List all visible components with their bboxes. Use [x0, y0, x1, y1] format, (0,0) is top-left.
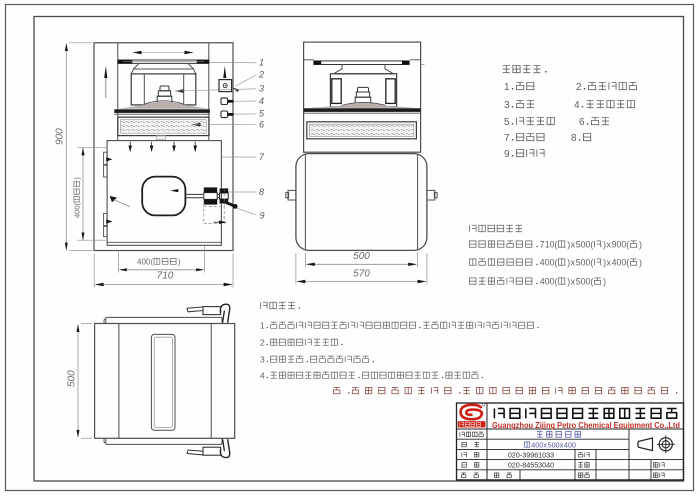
- svg-text:2: 2: [576, 82, 582, 93]
- svg-text:570: 570: [353, 268, 370, 279]
- svg-text:3: 3: [260, 355, 265, 365]
- svg-text:400: 400: [564, 440, 576, 449]
- svg-text:1: 1: [504, 82, 510, 93]
- svg-text:3: 3: [259, 84, 264, 94]
- svg-text:710: 710: [157, 271, 174, 282]
- svg-text:400: 400: [612, 258, 627, 268]
- svg-text:500: 500: [67, 370, 78, 387]
- svg-text:(: (: [555, 258, 558, 268]
- svg-text:400: 400: [540, 258, 555, 268]
- svg-text:500: 500: [353, 251, 370, 262]
- svg-text:Guangzhou Zijing Petro Chemica: Guangzhou Zijing Petro Chemical Equipmen…: [492, 421, 680, 430]
- svg-text:020-84553040: 020-84553040: [508, 461, 554, 470]
- svg-text:6: 6: [579, 117, 585, 128]
- svg-text:4: 4: [259, 96, 264, 106]
- svg-text:400: 400: [540, 277, 555, 287]
- svg-text:(: (: [555, 277, 558, 287]
- svg-text:500: 500: [576, 240, 591, 250]
- svg-text:2: 2: [258, 70, 264, 80]
- svg-text:9: 9: [260, 211, 265, 221]
- svg-text:710: 710: [540, 240, 555, 250]
- svg-text:): ): [603, 277, 606, 287]
- svg-text:5: 5: [504, 117, 510, 128]
- svg-text:(: (: [590, 258, 593, 268]
- svg-text:(: (: [626, 258, 629, 268]
- svg-text:4: 4: [574, 100, 580, 111]
- svg-text:1: 1: [259, 58, 264, 68]
- svg-text:500: 500: [576, 258, 591, 268]
- svg-text:4: 4: [260, 371, 265, 381]
- svg-text:): ): [178, 258, 181, 267]
- svg-text:2: 2: [260, 338, 265, 348]
- svg-text:(: (: [590, 277, 593, 287]
- svg-text:500: 500: [576, 277, 591, 287]
- svg-text:900: 900: [612, 240, 627, 250]
- svg-text:6: 6: [259, 120, 264, 130]
- svg-text:8: 8: [259, 187, 264, 197]
- svg-text:(: (: [555, 240, 558, 250]
- svg-text:400: 400: [531, 440, 543, 449]
- svg-text:): ): [639, 240, 642, 250]
- svg-text:(: (: [590, 240, 593, 250]
- svg-text:3: 3: [504, 100, 510, 111]
- svg-text:020-39961033: 020-39961033: [508, 450, 554, 459]
- svg-text:(: (: [626, 240, 629, 250]
- svg-text:400: 400: [73, 205, 82, 218]
- svg-text:8: 8: [571, 133, 577, 144]
- svg-text:(: (: [150, 258, 153, 267]
- svg-text:9: 9: [504, 149, 510, 160]
- svg-text:500: 500: [548, 440, 560, 449]
- svg-text:400: 400: [137, 258, 151, 267]
- svg-text:1: 1: [260, 321, 265, 331]
- svg-text:7: 7: [504, 133, 510, 144]
- svg-text:): ): [639, 258, 642, 268]
- svg-text:900: 900: [55, 128, 66, 145]
